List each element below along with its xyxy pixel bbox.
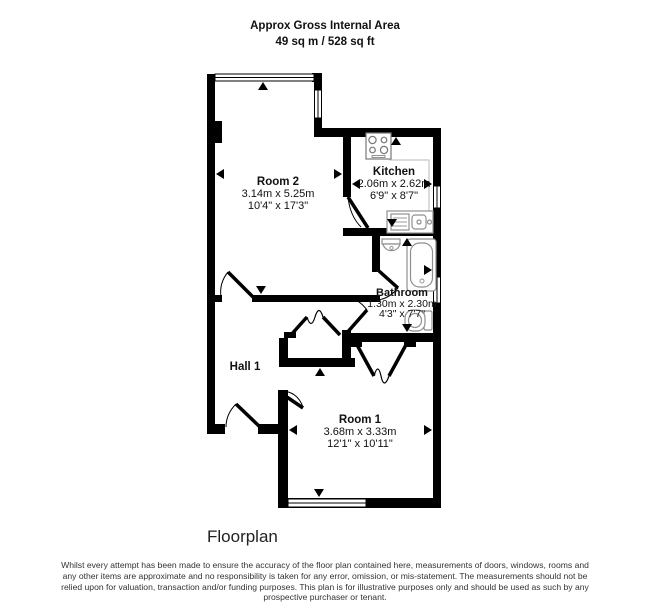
room1-name: Room 1: [300, 414, 420, 426]
arrow-right-icon: [424, 425, 432, 435]
room1-metric: 3.68m x 3.33m: [300, 426, 420, 438]
room1-imperial: 12'1" x 10'11": [300, 438, 420, 450]
window-room2-right-icon: [315, 90, 322, 118]
floorplan-caption: Floorplan: [207, 527, 278, 547]
arrow-down-icon: [256, 286, 266, 294]
double-door-room1-icon: [356, 343, 407, 383]
door-hall-bottom-icon: [226, 404, 260, 427]
arrow-up-icon: [258, 82, 268, 90]
bathroom-basin-icon: [382, 239, 400, 251]
window-room1-bottom-icon: [288, 499, 366, 507]
hall-label: Hall 1: [205, 361, 285, 373]
room2-metric: 3.14m x 5.25m: [218, 188, 338, 200]
floorplan-drawing: [0, 0, 650, 614]
kitchen-label: Kitchen 2.06m x 2.62m 6'9" x 8'7": [348, 166, 440, 202]
bathtub-icon: [407, 239, 436, 291]
bathroom-label: Bathroom 1.30m x 2.30m 4'3" x 7'7": [354, 288, 450, 320]
stove-icon: [366, 133, 391, 159]
hall-name: Hall 1: [205, 361, 285, 373]
room2-name: Room 2: [218, 176, 338, 188]
kitchen-name: Kitchen: [348, 166, 440, 178]
floorplan-page: Approx Gross Internal Area 49 sq m / 528…: [0, 0, 650, 614]
arrow-left-icon: [289, 425, 297, 435]
disclaimer-text: Whilst every attempt has been made to en…: [53, 560, 597, 603]
kitchen-metric: 2.06m x 2.62m: [348, 178, 440, 190]
bathroom-name: Bathroom: [354, 288, 450, 299]
door-room2-icon: [221, 272, 253, 297]
bathroom-imperial: 4'3" x 7'7": [354, 309, 450, 320]
window-room2-top-icon: [215, 74, 314, 81]
double-door-closet-icon: [290, 311, 340, 337]
room2-label: Room 2 3.14m x 5.25m 10'4" x 17'3": [218, 176, 338, 212]
room1-label: Room 1 3.68m x 3.33m 12'1" x 10'11": [300, 414, 420, 450]
arrow-up-icon: [391, 137, 401, 145]
kitchen-imperial: 6'9" x 8'7": [348, 190, 440, 202]
arrow-down-icon: [314, 489, 324, 497]
room2-imperial: 10'4" x 17'3": [218, 200, 338, 212]
arrow-up-icon: [315, 368, 325, 376]
